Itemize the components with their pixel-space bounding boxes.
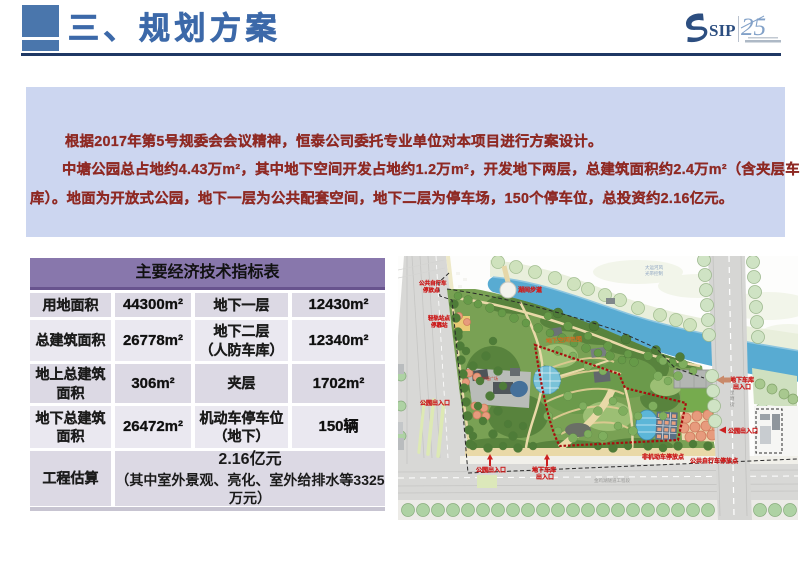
svg-text:中塘广场: 中塘广场 bbox=[482, 375, 498, 381]
svg-text:出入口: 出入口 bbox=[536, 473, 554, 481]
svg-text:25: 25 bbox=[741, 14, 766, 41]
svg-text:轻轨站点: 轻轨站点 bbox=[428, 314, 451, 322]
svg-text:非机动车停放点: 非机动车停放点 bbox=[642, 453, 684, 461]
svg-text:地下车库: 地下车库 bbox=[730, 376, 754, 384]
svg-text:公园出入口: 公园出入口 bbox=[728, 427, 758, 435]
svg-text:出入口: 出入口 bbox=[733, 383, 751, 391]
svg-text:公园出入口: 公园出入口 bbox=[420, 399, 450, 407]
svg-text:星: 星 bbox=[730, 390, 735, 395]
svg-text:SIP: SIP bbox=[709, 21, 735, 40]
svg-text:停放点: 停放点 bbox=[423, 286, 440, 294]
svg-text:湖间步道: 湖间步道 bbox=[518, 286, 542, 294]
svg-text:停靠站: 停靠站 bbox=[431, 321, 448, 329]
svg-text:塘: 塘 bbox=[730, 395, 735, 402]
svg-text:公共自行车停放点: 公共自行车停放点 bbox=[690, 457, 738, 465]
svg-text:地下车库: 地下车库 bbox=[532, 466, 556, 474]
svg-text:金鸡湖隧道工程段: 金鸡湖隧道工程段 bbox=[594, 477, 630, 484]
svg-text:公园出入口: 公园出入口 bbox=[476, 466, 506, 474]
svg-text:街: 街 bbox=[730, 401, 735, 408]
svg-text:公共自行车: 公共自行车 bbox=[419, 279, 447, 287]
svg-text:大运河风: 大运河风 bbox=[645, 264, 663, 271]
svg-text:光带控制: 光带控制 bbox=[645, 270, 663, 277]
